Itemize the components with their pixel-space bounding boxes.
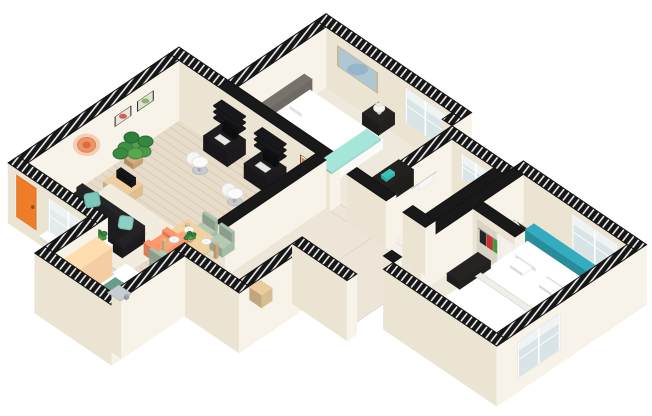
teal-pillow — [84, 192, 101, 208]
sunburst-decor — [73, 134, 100, 156]
dinner-plate — [201, 238, 211, 244]
floor-plan-3d-render — [0, 0, 652, 416]
dining-table-leg — [214, 242, 218, 259]
kitchen-faucet — [124, 294, 128, 300]
floor-plan-scene — [8, 14, 646, 407]
teal-pillow — [118, 215, 134, 230]
floor-plan-3d-svg — [0, 0, 652, 416]
dinner-plate — [169, 237, 179, 243]
